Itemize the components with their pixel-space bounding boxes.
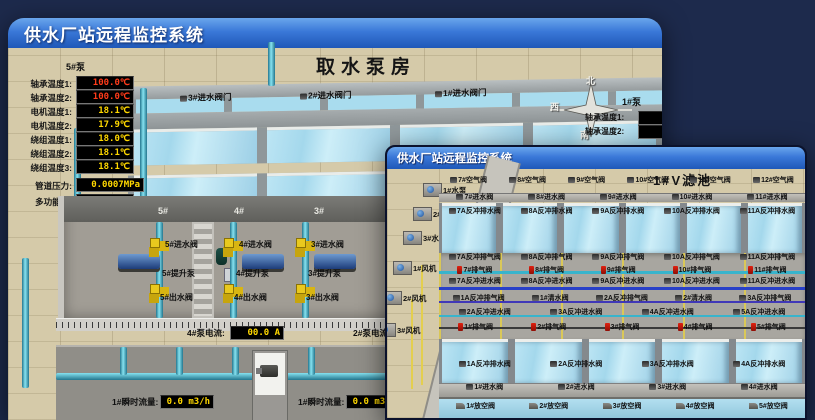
inlet-valve-row-bottom: 1#进水阀2#进水阀3#进水阀4#进水阀 (439, 384, 805, 391)
elbow-pipe-icon (603, 403, 612, 409)
filter-grid: 7#空气阀8#空气阀9#空气阀10#空气阀11#空气阀12#空气阀 7#进水阀8… (439, 175, 805, 418)
valve-label[interactable]: 2#排气阀 (531, 323, 566, 331)
flow-readout-label: 1#瞬时流量: (112, 398, 158, 407)
valve-icon (740, 208, 747, 214)
cable (421, 265, 423, 385)
valve-icon (450, 177, 457, 183)
tank-icon (216, 248, 227, 265)
pump-icon (403, 231, 422, 245)
valve-label[interactable]: 7#进水阀 (456, 194, 493, 201)
valve-label[interactable]: 5A反冲进水阀 (733, 309, 785, 316)
panel-row: 绕组温度1:18.0℃ (10, 132, 148, 145)
flag-valve-icon (457, 266, 462, 274)
current-readout-value: 00.0 A (230, 326, 284, 340)
elbow-pipe-icon (676, 403, 685, 409)
elbow-pipe-icon (529, 403, 538, 409)
valve-label[interactable]: 8#空气阀 (509, 177, 546, 184)
valve-label[interactable]: 3#放空阀 (603, 403, 642, 410)
valve-icon (528, 194, 535, 200)
cable (411, 299, 413, 389)
pump-icon[interactable] (242, 254, 284, 269)
valve-icon (690, 177, 697, 183)
valve-label[interactable]: 9A反冲排水阀 (592, 208, 644, 215)
valve-label[interactable]: 12#空气阀 (753, 177, 794, 184)
inlet-valve-label[interactable]: 1#进水阀门 (435, 88, 486, 97)
valve-cluster-icon[interactable] (224, 238, 234, 248)
valve-label[interactable]: 1#清水阀 (532, 295, 569, 302)
valve-icon (558, 384, 565, 390)
right-panel-row: 轴承温度2: (585, 128, 624, 136)
valve-label[interactable]: 11#空气阀 (690, 177, 730, 184)
gallery-row: 1A反冲排气阀1#清水阀2A反冲排气阀2#清水阀3A反冲排气阀 (439, 295, 805, 302)
valve-label[interactable]: 4#进水阀 (741, 384, 778, 391)
valve-label[interactable]: 4#进水阀 (239, 241, 272, 249)
inlet-valve-label[interactable]: 2#进水阀门 (300, 91, 351, 100)
valve-label[interactable]: 8A反冲排气阀 (521, 254, 573, 261)
valve-icon (466, 384, 473, 390)
valve-label[interactable]: 3A反冲进水阀 (550, 309, 602, 316)
valve-icon (664, 208, 671, 214)
valve-icon (449, 254, 456, 260)
valve-label[interactable]: 7A反冲排水阀 (449, 208, 501, 215)
pump-icon[interactable] (118, 254, 160, 269)
gallery-row: 7A反冲进水阀8A反冲进水阀9A反冲进水阀10A反冲进水阀11A反冲进水阀 (439, 278, 805, 285)
valve-icon (568, 177, 575, 183)
valve-icon (300, 93, 307, 99)
valve-cluster-icon[interactable] (296, 238, 306, 248)
flag-valve-icon (529, 266, 534, 274)
valve-label[interactable]: 9#排气阀 (601, 266, 636, 274)
valve-icon (453, 295, 460, 301)
valve-icon (664, 278, 671, 284)
valve-label[interactable]: 5#排气阀 (751, 323, 786, 331)
valve-label[interactable]: 11A反冲排水阀 (740, 208, 795, 215)
titlebar[interactable]: 供水厂站远程监控系统 (8, 18, 662, 48)
valve-label[interactable]: 11#排气阀 (748, 266, 786, 274)
valve-icon (550, 361, 557, 367)
gallery-row: 7#排气阀8#排气阀9#排气阀10#排气阀11#排气阀 (439, 266, 805, 274)
valve-icon (550, 309, 557, 315)
value-box: 18.0℃ (76, 132, 134, 146)
value-box: 18.1℃ (76, 104, 134, 118)
valve-cluster-icon[interactable] (150, 284, 160, 294)
valve-icon (649, 384, 656, 390)
flag-valve-icon (673, 266, 678, 274)
air-valve-row: 7#空气阀8#空气阀9#空气阀10#空气阀11#空气阀12#空气阀 (439, 177, 805, 184)
valve-icon (521, 278, 528, 284)
valve-label[interactable]: 8#排气阀 (529, 266, 564, 274)
valve-icon (449, 208, 456, 214)
valve-label[interactable]: 9#空气阀 (568, 177, 605, 184)
valve-label[interactable]: 10A反冲排水阀 (664, 208, 720, 215)
flag-valve-icon (531, 323, 536, 331)
valve-icon (733, 309, 740, 315)
valve-label[interactable]: 9A反冲排气阀 (592, 254, 644, 261)
valve-label[interactable]: 2A反冲进水阀 (459, 309, 511, 316)
blower-icon (385, 291, 402, 305)
pipe (439, 287, 805, 290)
panel-row: 管道压力:0.0007MPa (10, 178, 148, 191)
valve-label[interactable]: 2A反冲排水阀 (550, 361, 602, 368)
inlet-valve-label[interactable]: 3#进水阀门 (180, 93, 231, 102)
valve-label[interactable]: 4A反冲进水阀 (642, 309, 694, 316)
pipe-gallery: 7A反冲排气阀8A反冲排气阀9A反冲排气阀10A反冲排气阀11A反冲排气阀 7#… (439, 253, 805, 339)
valve-label[interactable]: 4#出水阀 (234, 294, 267, 302)
valve-icon (592, 254, 599, 260)
valve-label[interactable]: 7A反冲进水阀 (449, 278, 501, 285)
valve-icon (733, 361, 740, 367)
value-box: 100.0℃ (76, 90, 134, 104)
flow-readout-label: 1#瞬时流量: (298, 398, 344, 407)
valve-label[interactable]: 1#排气阀 (458, 323, 493, 331)
elbow-pipe-icon (456, 403, 465, 409)
valve-icon (532, 295, 539, 301)
valve-label[interactable]: 2A反冲排气阀 (596, 295, 648, 302)
pipe (22, 258, 29, 388)
valve-icon (753, 177, 760, 183)
bay-label: 3# (314, 206, 324, 216)
blower-icon (393, 261, 412, 275)
valve-icon (509, 177, 516, 183)
valve-icon (642, 309, 649, 315)
valve-label[interactable]: 2#进水阀 (558, 384, 595, 391)
panel-row: 轴承温度1:100.0℃ (10, 76, 148, 89)
valve-label[interactable]: 3A反冲排气阀 (739, 295, 791, 302)
valve-icon (459, 361, 466, 367)
value-box: 18.1℃ (76, 160, 134, 174)
desktop-background: 供水厂站远程监控系统 取水泵房 (0, 0, 815, 420)
valve-icon (592, 278, 599, 284)
valve-label[interactable]: 9A反冲进水阀 (592, 278, 644, 285)
inlet-valve-row: 7#进水阀8#进水阀9#进水阀10#进水阀11#进水阀 (439, 194, 805, 201)
bay-label: 4# (234, 206, 244, 216)
gallery-row: 7A反冲排气阀8A反冲排气阀9A反冲排气阀10A反冲排气阀11A反冲排气阀 (439, 254, 805, 261)
right-panel-row: 轴承温度1: (585, 114, 624, 122)
valve-icon (459, 309, 466, 315)
valve-icon (600, 194, 607, 200)
valve-icon (456, 194, 463, 200)
value-box (638, 125, 662, 139)
valve-label[interactable]: 1A反冲排气阀 (453, 295, 505, 302)
flag-valve-icon (601, 266, 606, 274)
valve-label[interactable]: 3#出水阀 (306, 294, 339, 302)
gallery-row: 2A反冲进水阀3A反冲进水阀4A反冲进水阀5A反冲进水阀 (439, 309, 805, 316)
ladder (192, 222, 214, 318)
pump-icon[interactable] (314, 254, 356, 269)
value-box (638, 111, 662, 125)
valve-icon (664, 254, 671, 260)
valve-label[interactable]: 2#放空阀 (529, 403, 568, 410)
valve-label[interactable]: 7#排气阀 (457, 266, 492, 274)
booster-pump-icon[interactable] (252, 350, 288, 420)
scene-title: 取水泵房 (316, 52, 416, 79)
valve-icon (672, 194, 679, 200)
valve-label[interactable]: 3#进水阀 (311, 241, 344, 249)
panel-row: 电机温度2:17.9℃ (10, 118, 148, 131)
valve-cluster-icon[interactable] (296, 284, 306, 294)
valve-label[interactable]: 5#出水阀 (160, 294, 193, 302)
right-panel-header: 1#泵 (622, 98, 641, 107)
valve-label[interactable]: 4#排气阀 (678, 323, 713, 331)
flag-valve-icon (458, 323, 463, 331)
value-box: 18.1℃ (76, 146, 134, 160)
valve-label[interactable]: 3#排气阀 (605, 323, 640, 331)
valve-label[interactable]: 11#进水阀 (747, 194, 787, 201)
valve-icon (642, 361, 649, 367)
drain-valve-row: 1#放空阀2#放空阀3#放空阀4#放空阀5#放空阀 (439, 403, 805, 410)
valve-label[interactable]: 5#进水阀 (165, 241, 198, 249)
valve-label[interactable]: 1#放空阀 (456, 403, 495, 410)
pump-label[interactable]: 5#提升泵 (162, 270, 195, 278)
valve-label[interactable]: 9#进水阀 (600, 194, 637, 201)
valve-icon (675, 295, 682, 301)
valve-label[interactable]: 10A反冲进水阀 (664, 278, 720, 285)
flag-valve-icon (605, 323, 610, 331)
valve-icon (747, 194, 754, 200)
valve-label[interactable]: 4A反冲排水阀 (733, 361, 785, 368)
panel-row: 电机温度1:18.1℃ (10, 104, 148, 117)
valve-label[interactable]: 2#清水阀 (675, 295, 712, 302)
panel-row: 绕组温度3:18.1℃ (10, 160, 148, 173)
pipe (308, 347, 315, 375)
panel-header: 5#泵 (66, 60, 85, 73)
bay-label: 5# (158, 206, 168, 216)
panel-row: 绕组温度2:18.1℃ (10, 146, 148, 159)
value-box: 0.0007MPa (76, 178, 144, 192)
pipe (120, 347, 127, 375)
valve-icon (739, 295, 746, 301)
gallery-row: 1#排气阀2#排气阀3#排气阀4#排气阀5#排气阀 (439, 323, 805, 331)
pipe (268, 42, 275, 86)
valve-icon (741, 384, 748, 390)
valve-label[interactable]: 11A反冲排气阀 (740, 254, 795, 261)
valve-cluster-icon[interactable] (224, 284, 234, 294)
value-box: 17.9℃ (76, 118, 134, 132)
filter-pool-window[interactable]: 供水厂站远程监控系统 1#V滤池 1#水泵 2#水泵 3#水泵 1#风机 2#风… (385, 145, 807, 420)
pump-icon (413, 207, 432, 221)
valve-label[interactable]: 5#放空阀 (749, 403, 788, 410)
valve-icon (521, 254, 528, 260)
backwash-drain-row: 1A反冲排水阀2A反冲排水阀3A反冲排水阀4A反冲排水阀 (439, 361, 805, 368)
window-title: 供水厂站远程监控系统 (24, 21, 204, 46)
valve-icon (740, 254, 747, 260)
flag-valve-icon (678, 323, 683, 331)
value-box: 100.0℃ (76, 76, 134, 90)
flow-readout-value: 0.0 m3/h (160, 395, 214, 409)
valve-label[interactable]: 7A反冲排气阀 (449, 254, 501, 261)
valve-label[interactable]: 1#进水阀 (466, 384, 503, 391)
pump-glyph-icon (260, 365, 278, 377)
valve-label[interactable]: 4#放空阀 (676, 403, 715, 410)
valve-label[interactable]: 1A反冲排水阀 (459, 361, 511, 368)
valve-icon (596, 295, 603, 301)
valve-icon (449, 278, 456, 284)
valve-label[interactable]: 10#进水阀 (672, 194, 713, 201)
valve-label[interactable]: 8A反冲进水阀 (521, 278, 573, 285)
valve-icon (592, 208, 599, 214)
pump-label[interactable]: 4#提升泵 (236, 270, 269, 278)
flag-valve-icon (748, 266, 753, 274)
backwash-drain-row: 7A反冲排水阀8A反冲排水阀9A反冲排水阀10A反冲排水阀11A反冲排水阀 (439, 208, 805, 215)
valve-label[interactable]: 3#进水阀 (649, 384, 686, 391)
valve-icon (435, 91, 442, 97)
current-readout-label: 4#泵电流: (187, 329, 225, 338)
valve-icon (627, 177, 634, 183)
valve-label[interactable]: 8A反冲排水阀 (521, 208, 573, 215)
valve-icon (180, 95, 187, 101)
pipe (232, 347, 239, 375)
pipe (176, 347, 183, 375)
valve-label[interactable]: 10#空气阀 (627, 177, 668, 184)
titlebar[interactable]: 供水厂站远程监控系统 (387, 147, 805, 169)
filter-pool-scene: 1#V滤池 1#水泵 2#水泵 3#水泵 1#风机 2#风机 3#风机 7#空气… (387, 169, 805, 418)
panel-row: 轴承温度2:100.0℃ (10, 90, 148, 103)
valve-cluster-icon[interactable] (150, 238, 160, 248)
blower-icon (385, 323, 396, 337)
valve-label[interactable]: 7#空气阀 (450, 177, 487, 184)
pump-label[interactable]: 3#提升泵 (308, 270, 341, 278)
basin-cell (134, 127, 257, 165)
basin-cell (267, 125, 390, 163)
valve-label[interactable]: 3A反冲排水阀 (642, 361, 694, 368)
valve-label[interactable]: 10A反冲排气阀 (664, 254, 720, 261)
flag-valve-icon (751, 323, 756, 331)
valve-icon (521, 208, 528, 214)
valve-icon (740, 278, 747, 284)
valve-label[interactable]: 11A反冲进水阀 (740, 278, 795, 285)
valve-label[interactable]: 10#排气阀 (673, 266, 712, 274)
valve-label[interactable]: 8#进水阀 (528, 194, 565, 201)
elbow-pipe-icon (749, 403, 758, 409)
